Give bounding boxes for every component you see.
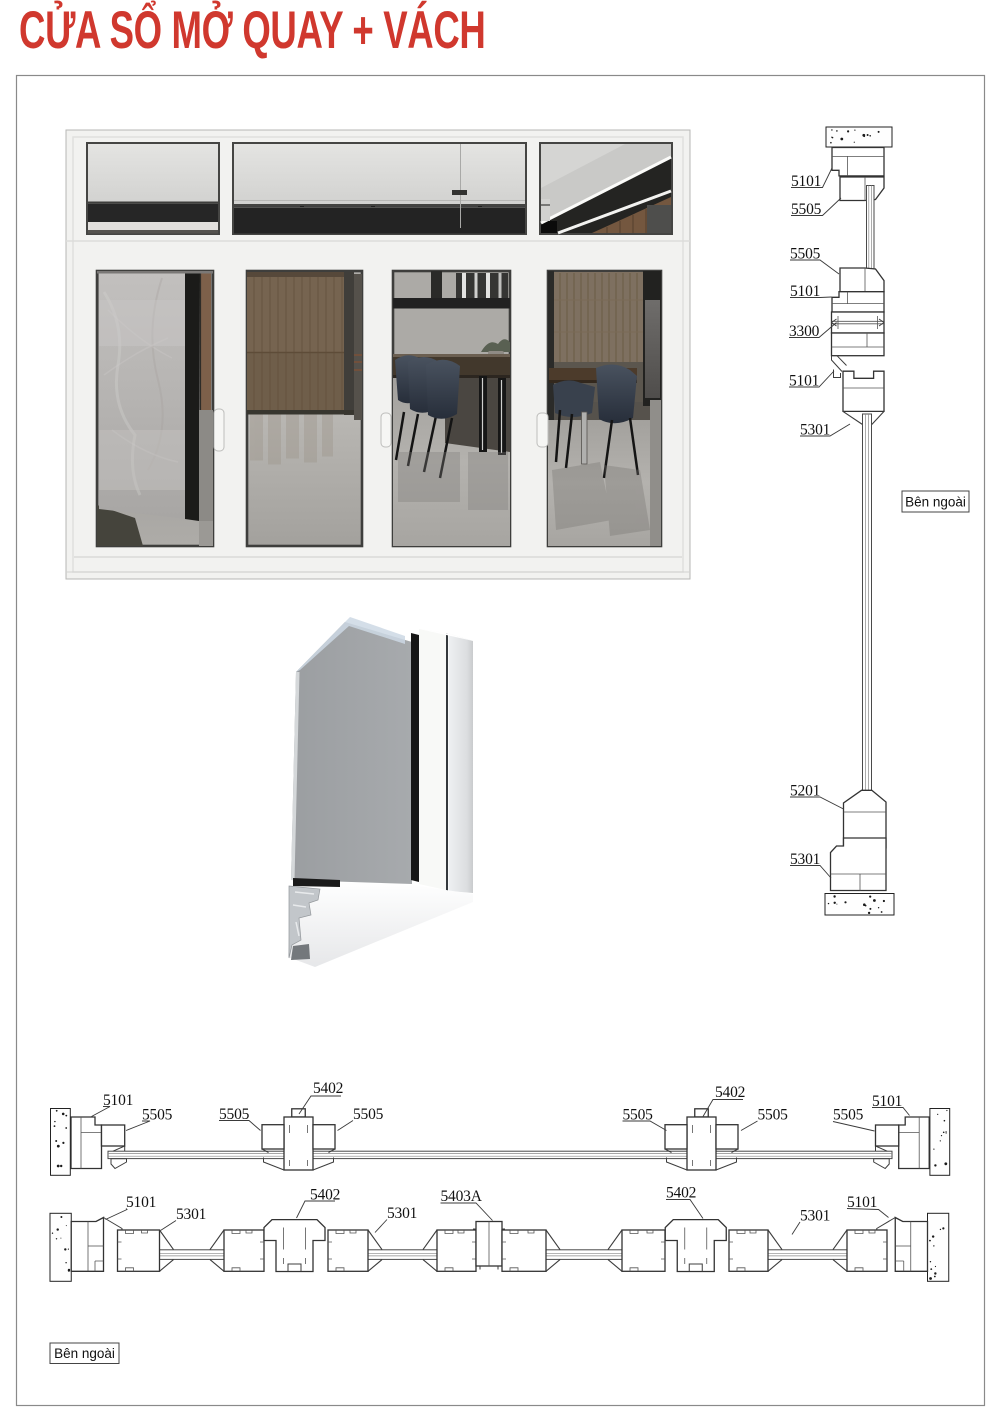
svg-text:5403A: 5403A (441, 1188, 483, 1205)
svg-text:Bên ngoài: Bên ngoài (905, 495, 966, 510)
svg-text:5505: 5505 (758, 1107, 789, 1124)
svg-text:5301: 5301 (387, 1205, 417, 1222)
svg-text:5505: 5505 (353, 1106, 384, 1123)
svg-text:5301: 5301 (800, 1208, 830, 1225)
svg-text:5101: 5101 (126, 1194, 156, 1211)
svg-text:5505: 5505 (833, 1107, 864, 1124)
svg-text:5402: 5402 (666, 1185, 696, 1202)
svg-text:5301: 5301 (176, 1206, 206, 1223)
svg-text:Bên ngoài: Bên ngoài (54, 1346, 115, 1361)
svg-text:5402: 5402 (715, 1084, 745, 1101)
svg-text:5402: 5402 (313, 1080, 343, 1097)
